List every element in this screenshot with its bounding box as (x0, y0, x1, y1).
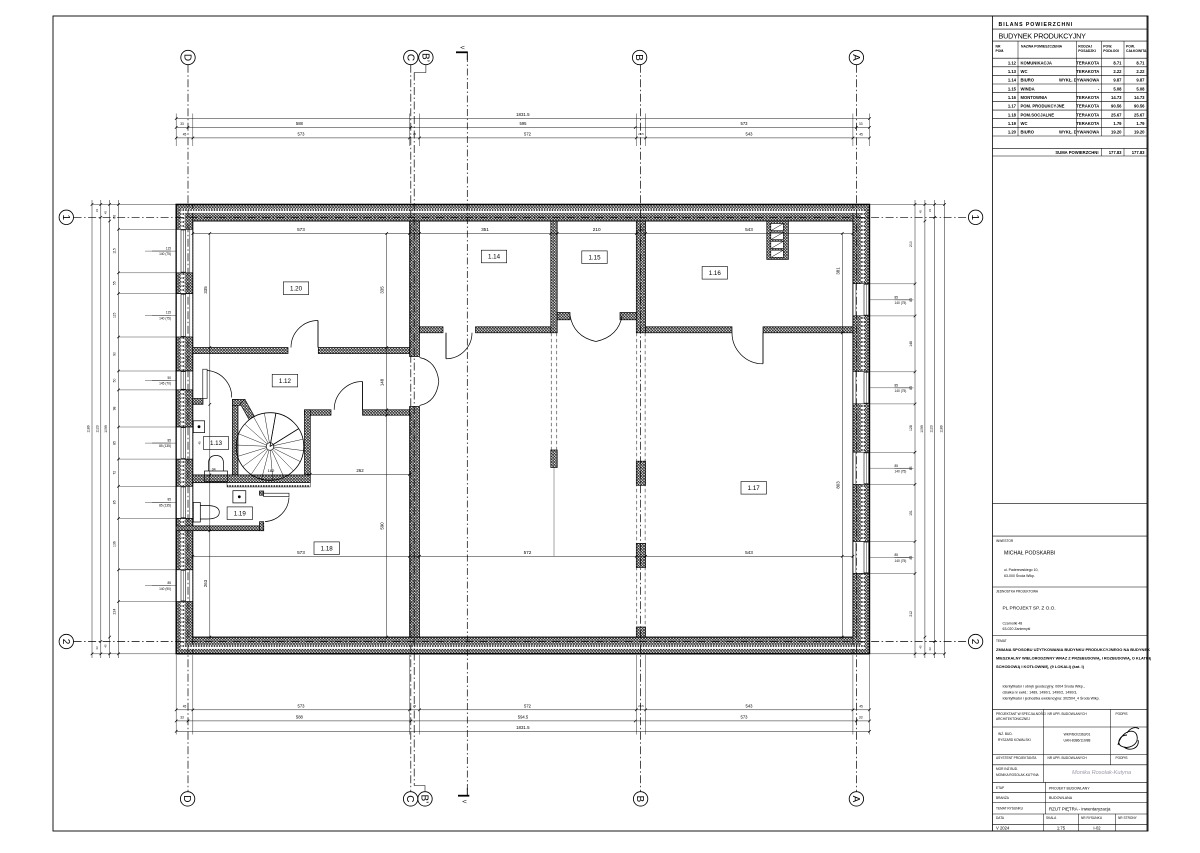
svg-text:NR UPR. BUDOWLANYCH: NR UPR. BUDOWLANYCH (1048, 756, 1088, 760)
svg-text:2.22: 2.22 (1136, 69, 1145, 74)
svg-text:25.67: 25.67 (1134, 112, 1145, 117)
svg-text:590: 590 (380, 522, 385, 530)
svg-text:381: 381 (835, 267, 840, 275)
svg-text:210: 210 (909, 241, 913, 247)
svg-text:14.73: 14.73 (1111, 95, 1122, 100)
svg-text:33: 33 (928, 209, 932, 213)
svg-text:25.67: 25.67 (1111, 112, 1122, 117)
svg-text:1.20: 1.20 (290, 285, 303, 292)
svg-text:2: 2 (60, 639, 71, 645)
svg-text:33: 33 (180, 716, 184, 720)
svg-text:TERAKOTA: TERAKOTA (1076, 69, 1099, 74)
svg-text:28.5: 28.5 (638, 132, 644, 136)
svg-text:1123: 1123 (95, 425, 99, 432)
svg-text:INŻ. BUD.: INŻ. BUD. (998, 731, 1013, 736)
svg-text:85: 85 (112, 441, 116, 445)
svg-text:DATA: DATA (996, 816, 1005, 820)
svg-text:1:75: 1:75 (1057, 825, 1066, 830)
svg-text:1: 1 (60, 215, 71, 221)
svg-text:45: 45 (183, 705, 187, 709)
svg-text:573: 573 (741, 121, 749, 126)
svg-text:1831.5: 1831.5 (516, 112, 530, 117)
svg-text:55: 55 (112, 281, 116, 285)
svg-text:D: D (181, 795, 192, 802)
svg-text:1.13: 1.13 (1008, 69, 1017, 74)
svg-text:1.18: 1.18 (321, 545, 334, 552)
svg-text:90.56: 90.56 (1111, 104, 1122, 109)
svg-text:1.19: 1.19 (234, 510, 247, 517)
svg-text:1.15: 1.15 (1008, 86, 1017, 91)
svg-text:5.08: 5.08 (1113, 86, 1122, 91)
svg-text:85: 85 (167, 498, 171, 502)
svg-text:148: 148 (380, 378, 385, 386)
svg-text:573: 573 (741, 715, 749, 720)
svg-text:140 (75): 140 (75) (895, 301, 907, 305)
svg-text:128: 128 (909, 425, 913, 431)
svg-text:NR STRONY: NR STRONY (1118, 816, 1138, 820)
svg-text:115: 115 (112, 248, 116, 254)
svg-text:1123: 1123 (930, 425, 934, 432)
svg-text:1831.5: 1831.5 (516, 725, 530, 730)
svg-text:573: 573 (298, 132, 306, 137)
svg-text:C: C (404, 54, 415, 61)
svg-text:WINDA: WINDA (1021, 86, 1035, 91)
svg-text:UAN-8386/110/88: UAN-8386/110/88 (1064, 739, 1091, 743)
svg-text:33: 33 (95, 209, 99, 213)
svg-text:33: 33 (95, 646, 99, 650)
svg-text:CAŁKOWITA: CAŁKOWITA (1126, 49, 1147, 53)
svg-text:ASYSTENT PROJEKTANTA: ASYSTENT PROJEKTANTA (996, 756, 1037, 760)
svg-text:ul. Paderewskiego 10,: ul. Paderewskiego 10, (1004, 568, 1038, 572)
svg-text:1.14: 1.14 (488, 254, 501, 261)
svg-text:SUMA POWIERZCHNI: SUMA POWIERZCHNI (1055, 150, 1098, 155)
svg-text:2.22: 2.22 (1113, 69, 1122, 74)
svg-text:ARCHITEKTONICZNEJ: ARCHITEKTONICZNEJ (996, 717, 1030, 721)
svg-text:85: 85 (895, 295, 899, 299)
svg-text:140 (75): 140 (75) (159, 317, 171, 321)
svg-text:A: A (850, 796, 861, 803)
svg-text:INWESTOR: INWESTOR (996, 539, 1014, 543)
svg-text:588: 588 (296, 715, 304, 720)
svg-text:543: 543 (745, 227, 753, 232)
svg-text:SCHODOWĄ I KOTŁOWNIĘ, (9 LOKAL: SCHODOWĄ I KOTŁOWNIĘ, (9 LOKALI) (kat. I… (996, 664, 1085, 669)
svg-text:25: 25 (413, 228, 417, 232)
svg-text:2: 2 (969, 639, 980, 645)
svg-text:50: 50 (167, 376, 171, 380)
svg-text:BIURO: BIURO (1021, 78, 1035, 83)
svg-text:335: 335 (380, 286, 385, 294)
svg-text:WKP/BO/2363/01: WKP/BO/2363/01 (1064, 733, 1091, 737)
svg-text:115: 115 (166, 311, 171, 315)
svg-text:45: 45 (919, 645, 923, 649)
svg-text:ETAP: ETAP (996, 786, 1004, 790)
svg-text:MONTOWNIA: MONTOWNIA (1021, 95, 1048, 100)
svg-text:224: 224 (112, 609, 116, 615)
svg-text:140 (75): 140 (75) (159, 252, 171, 256)
svg-text:1.18: 1.18 (1008, 112, 1017, 117)
svg-text:1.79: 1.79 (1113, 121, 1122, 126)
svg-text:1189: 1189 (87, 425, 91, 432)
svg-text:C: C (404, 795, 415, 802)
svg-text:140 (75): 140 (75) (895, 559, 907, 563)
svg-text:45: 45 (183, 133, 187, 137)
svg-text:151: 151 (909, 510, 913, 516)
svg-text:140 (75): 140 (75) (895, 470, 907, 474)
svg-text:9.87: 9.87 (1113, 78, 1122, 83)
svg-text:1.14: 1.14 (1008, 78, 1017, 83)
svg-text:25: 25 (413, 704, 417, 708)
svg-text:1.12: 1.12 (1008, 61, 1017, 66)
svg-text:262: 262 (356, 468, 364, 473)
svg-text:1.17: 1.17 (1008, 104, 1017, 109)
svg-text:145 (70): 145 (70) (159, 382, 171, 386)
svg-text:543: 543 (746, 132, 754, 137)
svg-text:RODZAJ: RODZAJ (1078, 45, 1092, 49)
svg-text:45: 45 (198, 441, 202, 445)
svg-text:1099: 1099 (920, 425, 924, 433)
svg-text:NR UPR. BUDOWLANYCH: NR UPR. BUDOWLANYCH (1048, 712, 1088, 716)
svg-text:85: 85 (167, 438, 171, 442)
svg-text:210: 210 (593, 227, 601, 232)
svg-text:72: 72 (112, 471, 116, 475)
svg-text:1.15: 1.15 (588, 254, 601, 261)
svg-text:Identyfikator i jednostka ewid: Identyfikator i jednostka ewidencyjna: 3… (1003, 696, 1100, 701)
svg-text:588: 588 (296, 121, 304, 126)
svg-text:I-02: I-02 (1093, 825, 1101, 830)
svg-text:BILANS POWIERZCHNI: BILANS POWIERZCHNI (999, 22, 1074, 28)
svg-text:1.12: 1.12 (279, 378, 292, 385)
svg-text:Identyfikator i obręb geodezyj: Identyfikator i obręb geodezyjny: 0004 Ś… (1003, 684, 1085, 689)
svg-text:572: 572 (524, 132, 532, 137)
svg-text:85: 85 (895, 383, 899, 387)
svg-text:28.5: 28.5 (638, 228, 644, 232)
svg-text:573: 573 (297, 550, 305, 555)
svg-text:25: 25 (413, 132, 417, 136)
svg-text:63-000 Środa Wlkp.: 63-000 Środa Wlkp. (1004, 573, 1035, 578)
svg-text:PODPIS: PODPIS (1116, 712, 1128, 716)
svg-text:WC: WC (1021, 121, 1028, 126)
svg-text:595: 595 (520, 121, 528, 126)
svg-text:1: 1 (969, 215, 980, 221)
svg-text:B: B (634, 796, 645, 803)
svg-text:B’: B’ (419, 794, 430, 803)
svg-text:45: 45 (859, 705, 863, 709)
svg-text:PODŁOGI: PODŁOGI (1103, 49, 1119, 53)
svg-text:543: 543 (746, 704, 754, 709)
svg-text:TEMAT: TEMAT (996, 639, 1007, 643)
svg-text:33: 33 (928, 647, 932, 651)
svg-text:212: 212 (909, 611, 913, 617)
svg-text:TEMAT RYSUNKU: TEMAT RYSUNKU (996, 807, 1024, 811)
svg-text:182: 182 (268, 468, 275, 473)
svg-text:POM.SOCJALNE: POM.SOCJALNE (1021, 112, 1055, 117)
svg-text:803: 803 (835, 481, 840, 489)
svg-text:BRANŻA: BRANŻA (996, 795, 1010, 800)
svg-text:8.71: 8.71 (1113, 61, 1122, 66)
svg-text:PROJEKT BUDOWLANY: PROJEKT BUDOWLANY (1049, 786, 1090, 790)
svg-text:85: 85 (112, 500, 116, 504)
svg-text:działka nr ewid.: 1489, 1490/1: działka nr ewid.: 1489, 1490/1, 1490/2, … (1003, 691, 1078, 695)
svg-text:POW.: POW. (1103, 45, 1112, 49)
svg-text:33: 33 (859, 716, 863, 720)
svg-text:Czarnotki 48: Czarnotki 48 (1003, 622, 1023, 626)
svg-text:B’: B’ (419, 53, 430, 62)
svg-text:MGR INŻ BUD.: MGR INŻ BUD. (996, 766, 1018, 771)
svg-text:140 (90): 140 (90) (159, 587, 171, 591)
svg-text:572: 572 (524, 704, 532, 709)
svg-text:50: 50 (112, 379, 116, 383)
svg-text:WYKŁ. DYWANOWA: WYKŁ. DYWANOWA (1059, 130, 1099, 135)
svg-text:WYKŁ. DYWANOWA: WYKŁ. DYWANOWA (1059, 78, 1099, 83)
svg-text:04: 04 (212, 468, 216, 472)
svg-text:66: 66 (112, 215, 116, 219)
svg-text:BUDOWLANA: BUDOWLANA (1049, 796, 1073, 800)
svg-text:MIESZKALNY WIELORODZINNY WRAZ: MIESZKALNY WIELORODZINNY WRAZ Z PRZEBUDO… (996, 656, 1152, 660)
svg-text:1.16: 1.16 (1008, 95, 1017, 100)
svg-text:90: 90 (112, 352, 116, 356)
svg-text:19.20: 19.20 (1111, 130, 1122, 135)
svg-text:TERAKOTA: TERAKOTA (1076, 95, 1099, 100)
svg-text:140 (75): 140 (75) (895, 389, 907, 393)
svg-text:D: D (182, 54, 193, 61)
svg-text:MONIKA ROSOLAK-KUTYNA: MONIKA ROSOLAK-KUTYNA (996, 773, 1040, 777)
svg-text:RZUT PIĘTRA - inwentaryzacja: RZUT PIĘTRA - inwentaryzacja (1049, 807, 1111, 812)
svg-text:B: B (633, 54, 644, 61)
svg-text:28.5: 28.5 (638, 704, 644, 708)
svg-text:NR RYSUNKU: NR RYSUNKU (1081, 816, 1103, 820)
svg-text:TERAKOTA: TERAKOTA (1076, 104, 1099, 109)
svg-text:594.5: 594.5 (518, 715, 529, 720)
svg-text:9.87: 9.87 (1136, 78, 1145, 83)
svg-text:TERAKOTA: TERAKOTA (1076, 121, 1099, 126)
svg-text:335: 335 (203, 286, 208, 294)
svg-text:PODPIS: PODPIS (1116, 756, 1128, 760)
svg-text:BIURO: BIURO (1021, 130, 1035, 135)
svg-text:RYSZARD KOWALSKI: RYSZARD KOWALSKI (998, 738, 1031, 742)
svg-text:A: A (850, 54, 861, 61)
svg-text:90.56: 90.56 (1134, 104, 1145, 109)
svg-text:1.16: 1.16 (709, 270, 722, 277)
svg-text:115: 115 (112, 312, 116, 318)
svg-text:543: 543 (745, 550, 753, 555)
svg-text:85: 85 (167, 581, 171, 585)
svg-text:MICHAŁ PODSKARBI: MICHAŁ PODSKARBI (1004, 551, 1055, 557)
svg-text:KOMUNIKACJA: KOMUNIKACJA (1021, 61, 1052, 66)
svg-text:JEDNOSTKA PROJEKTOWA: JEDNOSTKA PROJEKTOWA (996, 589, 1039, 593)
svg-text:85: 85 (895, 464, 899, 468)
svg-text:98: 98 (112, 407, 116, 411)
svg-text:14.73: 14.73 (1134, 95, 1145, 100)
svg-text:115: 115 (166, 246, 171, 250)
svg-text:572: 572 (524, 550, 532, 555)
svg-text:45: 45 (104, 211, 108, 215)
svg-text:148: 148 (909, 341, 913, 347)
svg-text:1.13: 1.13 (210, 440, 223, 447)
svg-text:PL PROJEKT SP. Z O.O.: PL PROJEKT SP. Z O.O. (1003, 605, 1056, 611)
svg-text:45: 45 (859, 133, 863, 137)
svg-text:POM.: POM. (996, 49, 1005, 53)
svg-text:1.79: 1.79 (1136, 121, 1145, 126)
svg-text:177.83: 177.83 (1132, 150, 1145, 155)
svg-text:5.08: 5.08 (1136, 86, 1145, 91)
svg-text:19.20: 19.20 (1134, 130, 1145, 135)
svg-text:177.83: 177.83 (1109, 150, 1122, 155)
svg-text:SKALA: SKALA (1046, 816, 1057, 820)
svg-text:NAZWA POMIESZCZENIA: NAZWA POMIESZCZENIA (1021, 45, 1063, 49)
svg-text:573: 573 (298, 704, 306, 709)
svg-text:1189: 1189 (939, 425, 943, 432)
svg-text:63-020 Zaniemyśl: 63-020 Zaniemyśl (1003, 627, 1031, 631)
svg-text:263: 263 (203, 579, 208, 587)
svg-text:85: 85 (895, 553, 899, 557)
svg-text:573: 573 (297, 227, 305, 232)
svg-text:PROJEKTANT W SPECJALNOŚCI: PROJEKTANT W SPECJALNOŚCI (996, 711, 1046, 716)
svg-text:Monika Rosolak-Kutyna: Monika Rosolak-Kutyna (1072, 770, 1131, 776)
svg-text:8.71: 8.71 (1136, 61, 1145, 66)
svg-text:1.17: 1.17 (748, 485, 761, 492)
svg-text:TERAKOTA: TERAKOTA (1076, 112, 1099, 117)
svg-text:POSADZKI: POSADZKI (1078, 49, 1096, 53)
svg-text:1.20: 1.20 (1008, 130, 1017, 135)
svg-text:85 (135): 85 (135) (159, 444, 171, 448)
svg-text:WC: WC (1021, 69, 1028, 74)
svg-text:1.19: 1.19 (1008, 121, 1017, 126)
svg-text:136: 136 (112, 541, 116, 547)
svg-text:45: 45 (104, 644, 108, 648)
svg-text:BUDYNEK PRODUKCYJNY: BUDYNEK PRODUKCYJNY (999, 31, 1087, 40)
svg-text:TERAKOTA: TERAKOTA (1076, 61, 1099, 66)
svg-text:1099: 1099 (104, 425, 108, 433)
svg-text:45: 45 (919, 210, 923, 214)
svg-text:V 2024: V 2024 (996, 825, 1010, 830)
svg-text:NR: NR (996, 45, 1001, 49)
svg-text:351: 351 (481, 227, 489, 232)
svg-text:85 (135): 85 (135) (159, 504, 171, 508)
svg-text:33: 33 (859, 122, 863, 126)
svg-text:ZMIANA SPOSOBU UŻYTKOWANIA BUD: ZMIANA SPOSOBU UŻYTKOWANIA BUDYNKU PRODU… (996, 647, 1150, 652)
svg-text:POM. PRODUKCYJNE: POM. PRODUKCYJNE (1021, 104, 1065, 109)
svg-text:POW.: POW. (1126, 45, 1135, 49)
svg-text:33: 33 (180, 122, 184, 126)
